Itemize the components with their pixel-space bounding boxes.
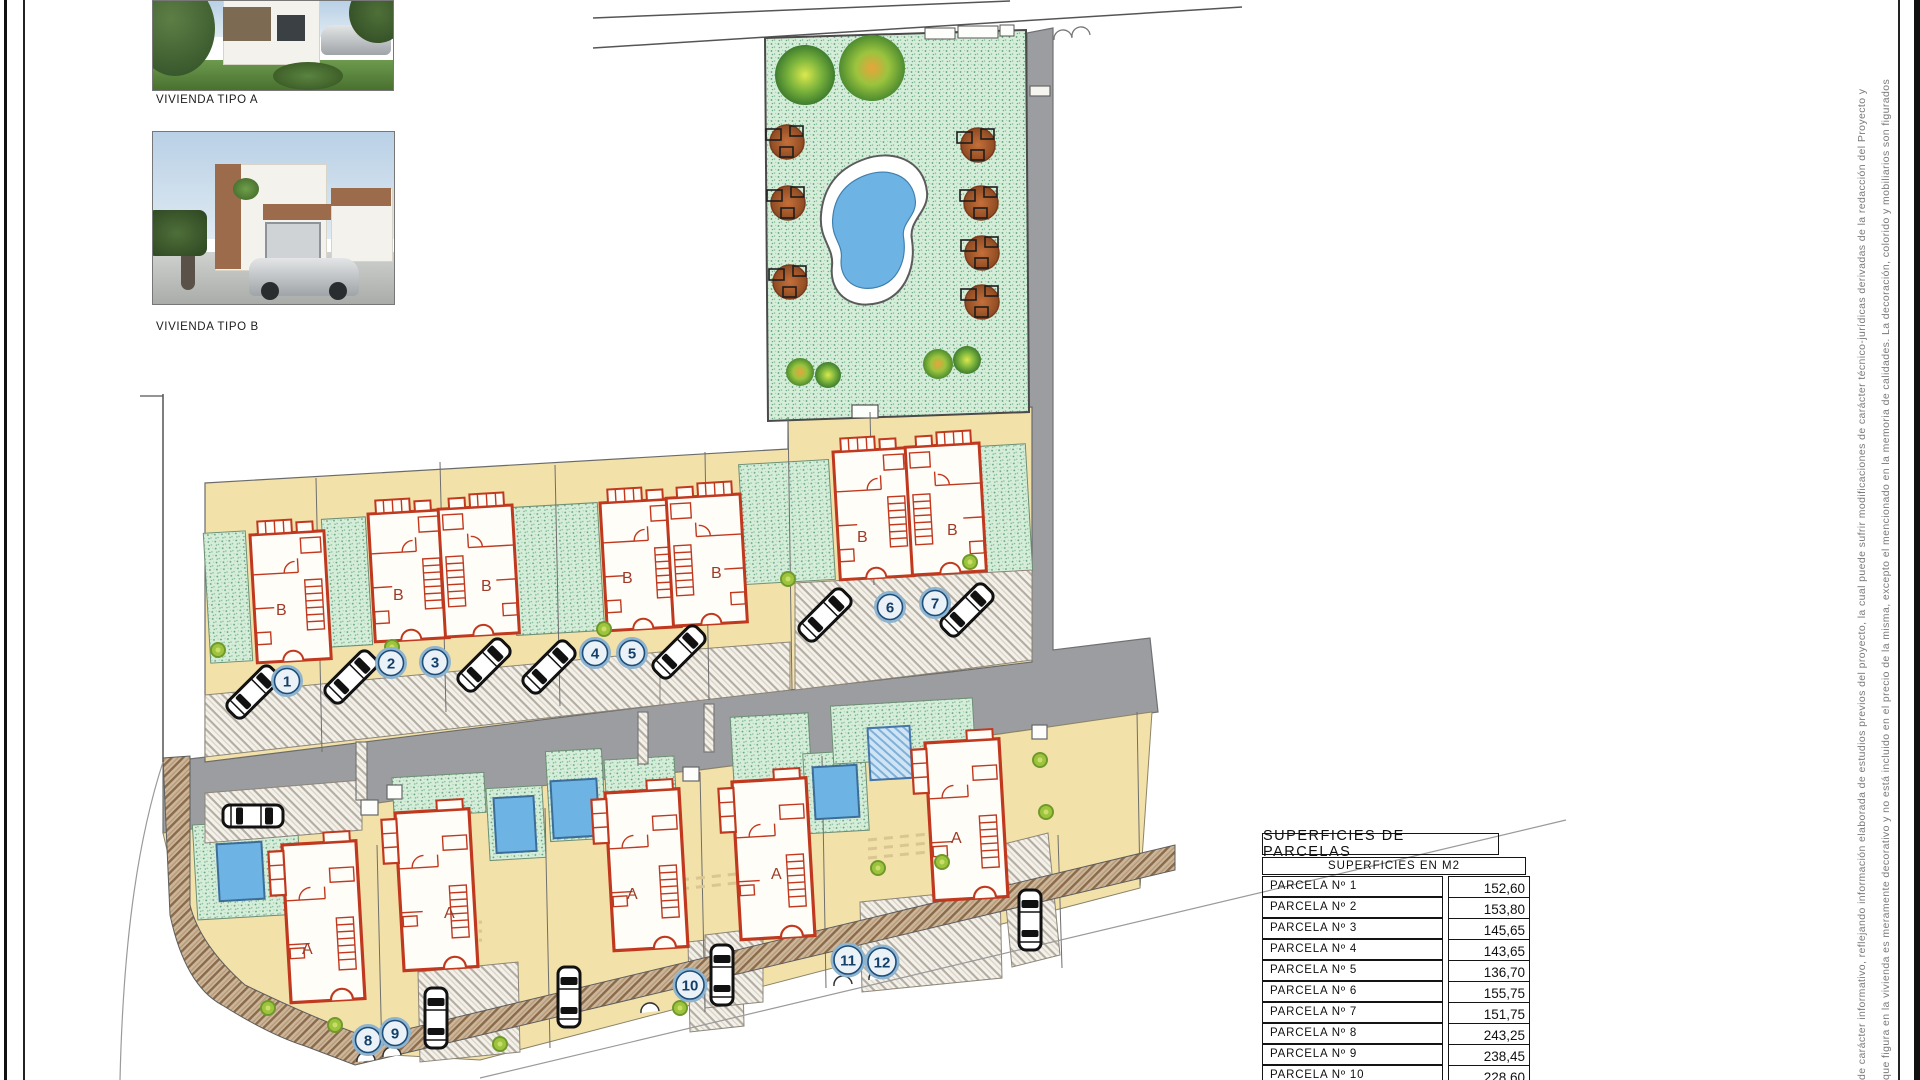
parcel-area-value: 145,65 bbox=[1448, 918, 1530, 940]
house-b bbox=[249, 518, 331, 663]
house-letter: A bbox=[951, 830, 962, 847]
house-letter: A bbox=[444, 905, 455, 922]
parcel-marker: 3 bbox=[421, 648, 450, 677]
svg-text:8: 8 bbox=[364, 1033, 372, 1050]
parcel-label: PARCELA Nº 2 bbox=[1262, 897, 1443, 918]
house-letter: B bbox=[857, 529, 868, 546]
road-scallops bbox=[1054, 27, 1090, 40]
parcel-area-value: 143,65 bbox=[1448, 939, 1530, 961]
house-letter: B bbox=[481, 578, 492, 595]
photo-b-caption: VIVIENDA TIPO B bbox=[156, 321, 259, 333]
palm-tree bbox=[923, 349, 953, 379]
svg-text:10: 10 bbox=[682, 978, 699, 995]
photo-house-trim bbox=[331, 188, 391, 206]
parcel-label: PARCELA Nº 5 bbox=[1262, 960, 1443, 981]
house-letter: B bbox=[622, 570, 633, 587]
photo-shrub bbox=[273, 62, 343, 90]
svg-text:2: 2 bbox=[387, 656, 395, 673]
house-b bbox=[367, 497, 449, 642]
parcel-label: PARCELA Nº 4 bbox=[1262, 939, 1443, 960]
house-b bbox=[832, 435, 914, 580]
parcel-marker: 10 bbox=[674, 969, 706, 1001]
table-row: PARCELA Nº 3145,65 bbox=[1262, 918, 1530, 940]
table-row: PARCELA Nº 6155,75 bbox=[1262, 981, 1530, 1003]
svg-text:4: 4 bbox=[591, 646, 600, 663]
house-letter: B bbox=[276, 602, 287, 619]
parcel-label: PARCELA Nº 7 bbox=[1262, 1002, 1443, 1023]
photo-hedge bbox=[152, 210, 207, 256]
parcel-area-value: 153,80 bbox=[1448, 897, 1530, 919]
svg-text:7: 7 bbox=[931, 596, 939, 613]
car bbox=[711, 945, 733, 1005]
parcel-marker: 9 bbox=[381, 1019, 410, 1048]
photo-vivienda-tipo-b bbox=[152, 131, 395, 305]
table-row: PARCELA Nº 10228,60 bbox=[1262, 1065, 1530, 1080]
sheet-border-right-outer bbox=[1914, 0, 1920, 1080]
house-letter: B bbox=[711, 565, 722, 582]
parcel-marker: 4 bbox=[581, 639, 610, 668]
svg-text:11: 11 bbox=[840, 953, 856, 970]
disclaimer-line-1: de carácter informativo, reflejando info… bbox=[1856, 2, 1868, 1080]
table-row: PARCELA Nº 8243,25 bbox=[1262, 1023, 1530, 1045]
house-b bbox=[904, 430, 986, 575]
table-row: PARCELA Nº 7151,75 bbox=[1262, 1002, 1530, 1024]
photo-house-trim bbox=[223, 7, 271, 41]
table-row: PARCELA Nº 5136,70 bbox=[1262, 960, 1530, 982]
parcel-label: PARCELA Nº 8 bbox=[1262, 1023, 1443, 1044]
parcel-marker: 5 bbox=[618, 639, 647, 668]
svg-text:5: 5 bbox=[628, 646, 636, 663]
parcel-area-value: 136,70 bbox=[1448, 960, 1530, 982]
house-letter: A bbox=[302, 941, 313, 958]
palm-tree bbox=[786, 358, 814, 386]
photo-wheel bbox=[261, 282, 279, 300]
parcel-label: PARCELA Nº 1 bbox=[1262, 876, 1443, 897]
sheet-border-left-outer bbox=[4, 0, 7, 1080]
pool-garden bbox=[765, 25, 1029, 421]
photo-a-caption: VIVIENDA TIPO A bbox=[156, 94, 258, 106]
house-letter: B bbox=[947, 522, 958, 539]
house-letter: A bbox=[771, 866, 782, 883]
palm-tree bbox=[839, 35, 905, 101]
parcel-marker: 8 bbox=[354, 1026, 383, 1055]
parcel-label: PARCELA Nº 10 bbox=[1262, 1065, 1443, 1080]
photo-window bbox=[277, 15, 305, 41]
svg-text:6: 6 bbox=[886, 600, 894, 617]
parcel-label: PARCELA Nº 9 bbox=[1262, 1044, 1443, 1065]
parcel-label: PARCELA Nº 6 bbox=[1262, 981, 1443, 1002]
parcel-area-value: 243,25 bbox=[1448, 1023, 1530, 1045]
plan-sheet: B B B B B B B A A A A A bbox=[0, 0, 1920, 1080]
table-row: PARCELA Nº 9238,45 bbox=[1262, 1044, 1530, 1066]
parcel-area-value: 228,60 bbox=[1448, 1065, 1530, 1080]
photo-vivienda-tipo-a bbox=[152, 0, 394, 91]
car bbox=[425, 988, 447, 1048]
table-row: PARCELA Nº 4143,65 bbox=[1262, 939, 1530, 961]
palm-tree bbox=[815, 362, 841, 388]
parcel-label: PARCELA Nº 3 bbox=[1262, 918, 1443, 939]
areas-table-title: SUPERFICIES DE PARCELAS bbox=[1262, 833, 1499, 855]
parcel-area-value: 152,60 bbox=[1448, 876, 1530, 898]
svg-text:9: 9 bbox=[391, 1026, 399, 1043]
sheet-border-left-inner bbox=[23, 0, 25, 1080]
parcel-area-value: 238,45 bbox=[1448, 1044, 1530, 1066]
svg-text:1: 1 bbox=[283, 674, 291, 691]
car bbox=[223, 805, 283, 827]
parcel-marker: 1 bbox=[273, 667, 302, 696]
sheet-border-right-inner bbox=[1898, 0, 1900, 1080]
parcel-marker: 2 bbox=[377, 649, 406, 678]
parcel-marker: 6 bbox=[876, 593, 905, 622]
house-b bbox=[437, 492, 519, 637]
palm-tree bbox=[953, 346, 981, 374]
table-row: PARCELA Nº 2153,80 bbox=[1262, 897, 1530, 919]
palm-tree bbox=[775, 45, 835, 105]
house-b bbox=[665, 481, 747, 626]
svg-text:3: 3 bbox=[431, 655, 439, 672]
disclaimer-line-2: que figura en la vivienda es meramente d… bbox=[1880, 2, 1892, 1080]
parcel-marker: 7 bbox=[921, 589, 950, 618]
car bbox=[1019, 890, 1041, 950]
car bbox=[558, 967, 580, 1027]
parcel-area-value: 155,75 bbox=[1448, 981, 1530, 1003]
areas-table: SUPERFICIES DE PARCELAS SUPERFICIES EN M… bbox=[1262, 833, 1530, 1080]
road-utility-box bbox=[1030, 86, 1050, 96]
areas-table-rows: PARCELA Nº 1152,60 PARCELA Nº 2153,80 PA… bbox=[1262, 876, 1530, 1080]
photo-wheel bbox=[329, 282, 347, 300]
parcel-marker: 12 bbox=[866, 946, 898, 978]
house-letter: A bbox=[627, 886, 638, 903]
table-row: PARCELA Nº 1152,60 bbox=[1262, 876, 1530, 898]
photo-palm bbox=[233, 178, 259, 200]
house-letter: B bbox=[393, 587, 404, 604]
svg-text:12: 12 bbox=[874, 955, 891, 972]
photo-house-trim bbox=[263, 204, 333, 220]
parcel-area-value: 151,75 bbox=[1448, 1002, 1530, 1024]
parcel-marker: 11 bbox=[832, 944, 864, 976]
